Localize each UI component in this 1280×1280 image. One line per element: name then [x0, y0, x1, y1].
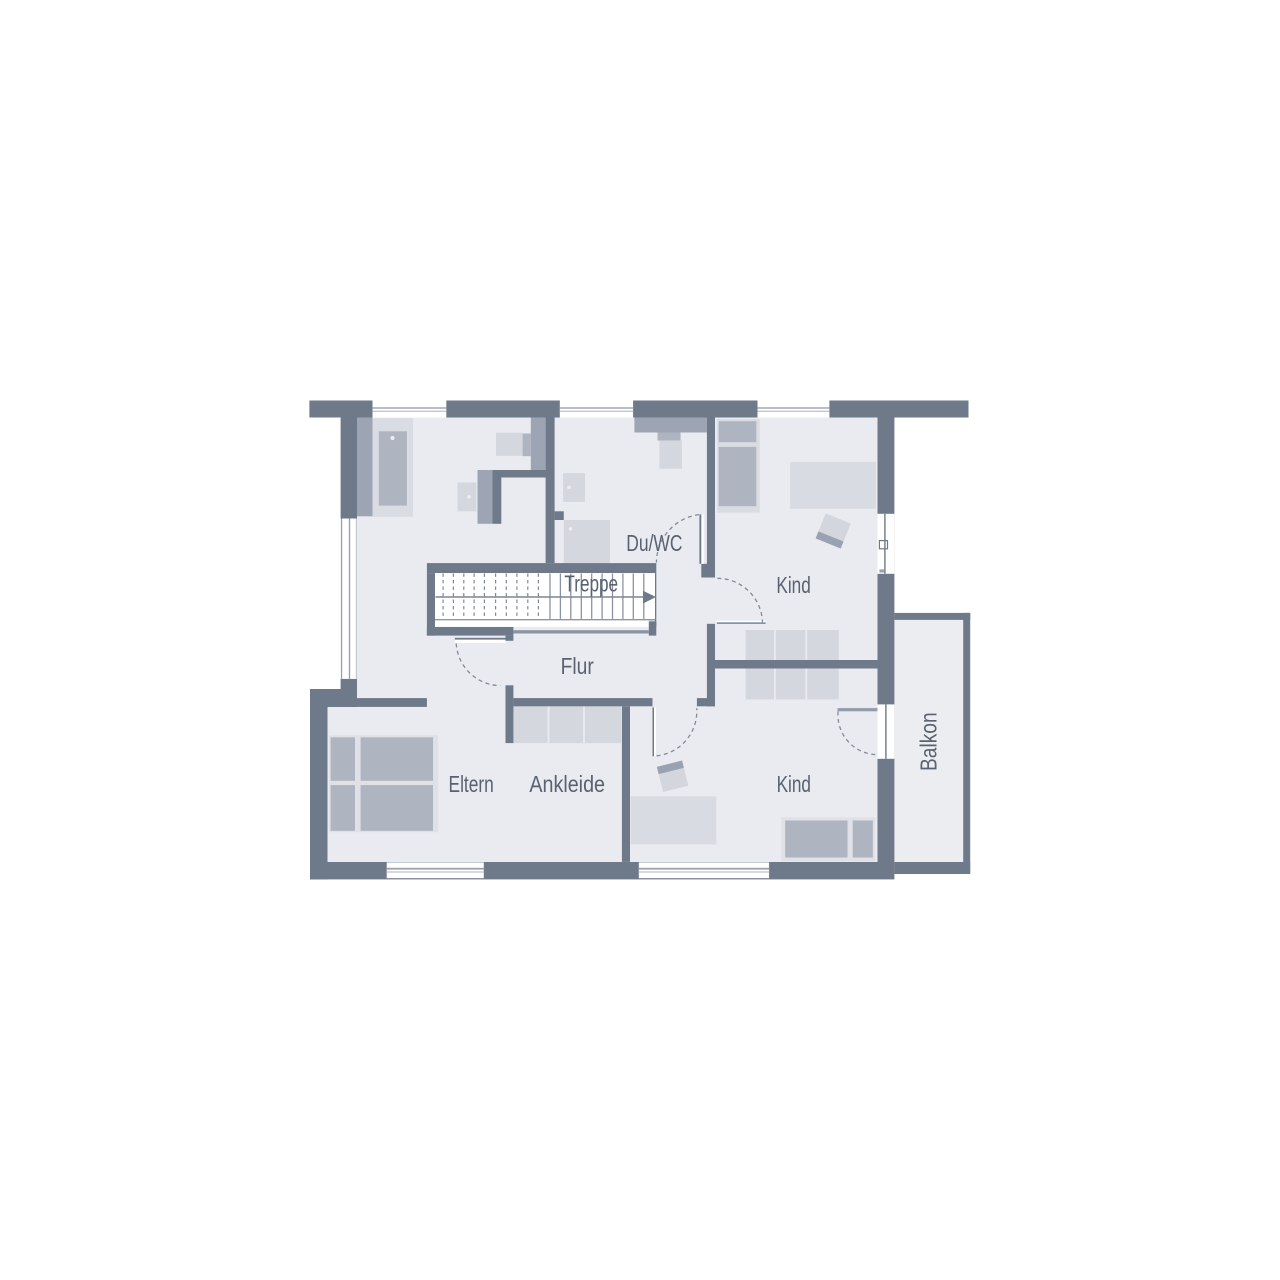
svg-text:Flur: Flur	[561, 653, 594, 679]
svg-text:Balkon: Balkon	[916, 712, 942, 771]
svg-text:Eltern: Eltern	[449, 771, 494, 797]
svg-text:Kind: Kind	[776, 572, 810, 598]
svg-text:Du/WC: Du/WC	[626, 530, 682, 556]
svg-text:Treppe: Treppe	[564, 570, 618, 596]
svg-text:Ankleide: Ankleide	[529, 771, 605, 797]
svg-text:Kind: Kind	[777, 771, 811, 797]
